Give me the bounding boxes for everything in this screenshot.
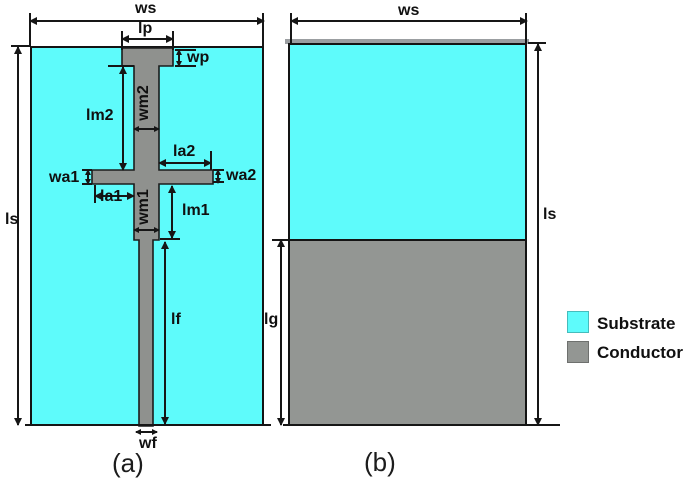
dim-label-lg: lg [264,312,278,328]
dim-label-wm1: wm1 [136,189,152,225]
dim-arrow-lg [280,240,282,425]
baseline-back [283,424,560,426]
antenna-geometry-figure: ws lp wp wm2 lm2 la2 wa1 wa2 la1 wm1 lm1… [0,0,685,478]
dim-arrow-ws-back [291,20,527,22]
dim-label-wa2: wa2 [226,168,256,184]
dim-label-wp: wp [187,50,209,66]
dim-arrow-wa1 [87,170,89,184]
legend-swatch-substrate [567,311,589,333]
dim-label-ls-front: ls [5,212,18,228]
dim-arrow-lp [122,38,173,40]
dim-label-la1: la1 [100,189,122,205]
dim-arrow-lm2 [122,67,124,170]
dim-arrow-wa2 [217,170,219,183]
dim-label-ws-back: ws [398,3,419,19]
dim-label-lm1: lm1 [182,203,210,219]
dim-arrow-lm1 [171,186,173,238]
dim-label-ws-front: ws [135,1,156,17]
dim-arrow-wf [136,431,157,433]
dim-label-lf: lf [171,312,181,328]
caption-panel-b: (b) [364,447,396,478]
dim-arrow-ls-front [17,47,19,425]
dim-label-lm2: lm2 [86,108,114,124]
dim-label-ls-back: ls [543,207,556,223]
dim-arrow-wm2 [134,128,159,130]
dim-arrow-wm1 [134,229,159,231]
dim-arrow-ls-back [537,44,539,425]
dim-label-la2: la2 [173,144,195,160]
ground-conductor [290,239,525,424]
dim-label-lp: lp [138,21,152,37]
dim-label-wm2: wm2 [136,85,152,121]
legend-label-conductor: Conductor [597,343,683,363]
dim-arrow-wp [178,50,180,66]
legend-label-substrate: Substrate [597,314,675,334]
legend-swatch-conductor [567,341,589,363]
cross-radiator-path [92,48,213,426]
caption-panel-a: (a) [112,448,144,478]
dim-label-wa1: wa1 [49,170,79,186]
dim-arrow-la2 [159,162,211,164]
baseline-front [25,424,271,426]
dim-arrow-lf [164,242,166,424]
